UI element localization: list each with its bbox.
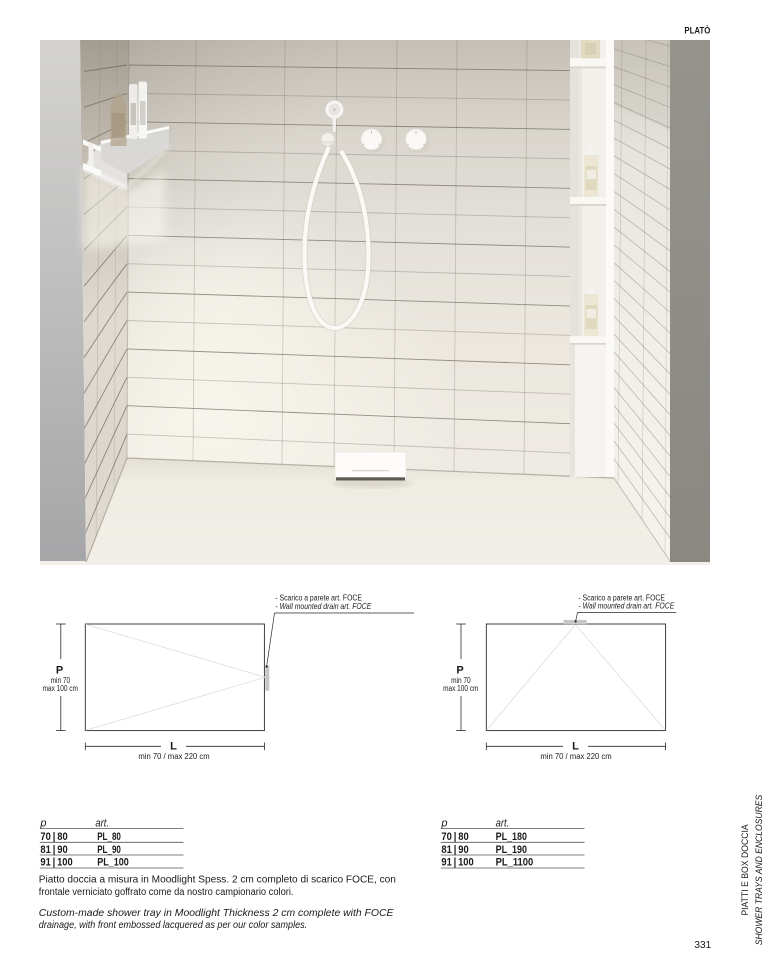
svg-text:PL_100: PL_100 <box>97 857 129 869</box>
svg-text:Piatto doccia a misura in Mood: Piatto doccia a misura in Moodlight Spes… <box>39 875 396 886</box>
svg-text:max 100 cm: max 100 cm <box>443 684 479 693</box>
svg-text:PL_90: PL_90 <box>97 844 121 856</box>
svg-text:PL_190: PL_190 <box>496 844 527 856</box>
svg-text:PLATÒ: PLATÒ <box>684 25 710 36</box>
svg-text:p: p <box>39 818 46 830</box>
svg-text:91 | 100: 91 | 100 <box>441 857 473 869</box>
svg-text:PL_1100: PL_1100 <box>496 857 534 869</box>
svg-text:L: L <box>170 741 177 753</box>
svg-text:p: p <box>440 818 447 830</box>
svg-text:art.: art. <box>95 818 109 830</box>
svg-text:- Wall mounted drain art. FOCE: - Wall mounted drain art. FOCE <box>275 602 371 611</box>
svg-text:Custom-made shower tray in Moo: Custom-made shower tray in Moodlight Thi… <box>39 908 394 919</box>
svg-text:P: P <box>456 665 463 677</box>
svg-text:min 70 / max 220 cm: min 70 / max 220 cm <box>138 752 210 761</box>
svg-text:P: P <box>56 665 63 677</box>
svg-text:81 | 90: 81 | 90 <box>40 844 67 856</box>
svg-text:91 | 100: 91 | 100 <box>40 857 72 869</box>
svg-text:PIATTI E BOX DOCCIA: PIATTI E BOX DOCCIA <box>740 824 750 915</box>
svg-text:70 | 80: 70 | 80 <box>441 831 468 843</box>
svg-text:art.: art. <box>496 818 510 830</box>
svg-text:max 100 cm: max 100 cm <box>43 684 79 693</box>
svg-text:drainage, with front embossed: drainage, with front embossed lacquered … <box>39 920 307 931</box>
svg-text:SHOWER TRAYS AND ENCLOSURES: SHOWER TRAYS AND ENCLOSURES <box>754 795 764 945</box>
svg-text:frontale verniciato goffrato c: frontale verniciato goffrato come da nos… <box>39 887 294 898</box>
svg-text:81 | 90: 81 | 90 <box>441 844 468 856</box>
svg-text:PL_80: PL_80 <box>97 831 121 843</box>
svg-text:L: L <box>572 741 579 753</box>
svg-text:- Wall mounted drain art. FOCE: - Wall mounted drain art. FOCE <box>578 602 674 611</box>
svg-text:70 | 80: 70 | 80 <box>40 831 67 843</box>
svg-text:331: 331 <box>694 940 711 951</box>
svg-text:PL_180: PL_180 <box>496 831 527 843</box>
svg-text:min 70 / max 220 cm: min 70 / max 220 cm <box>540 752 612 761</box>
